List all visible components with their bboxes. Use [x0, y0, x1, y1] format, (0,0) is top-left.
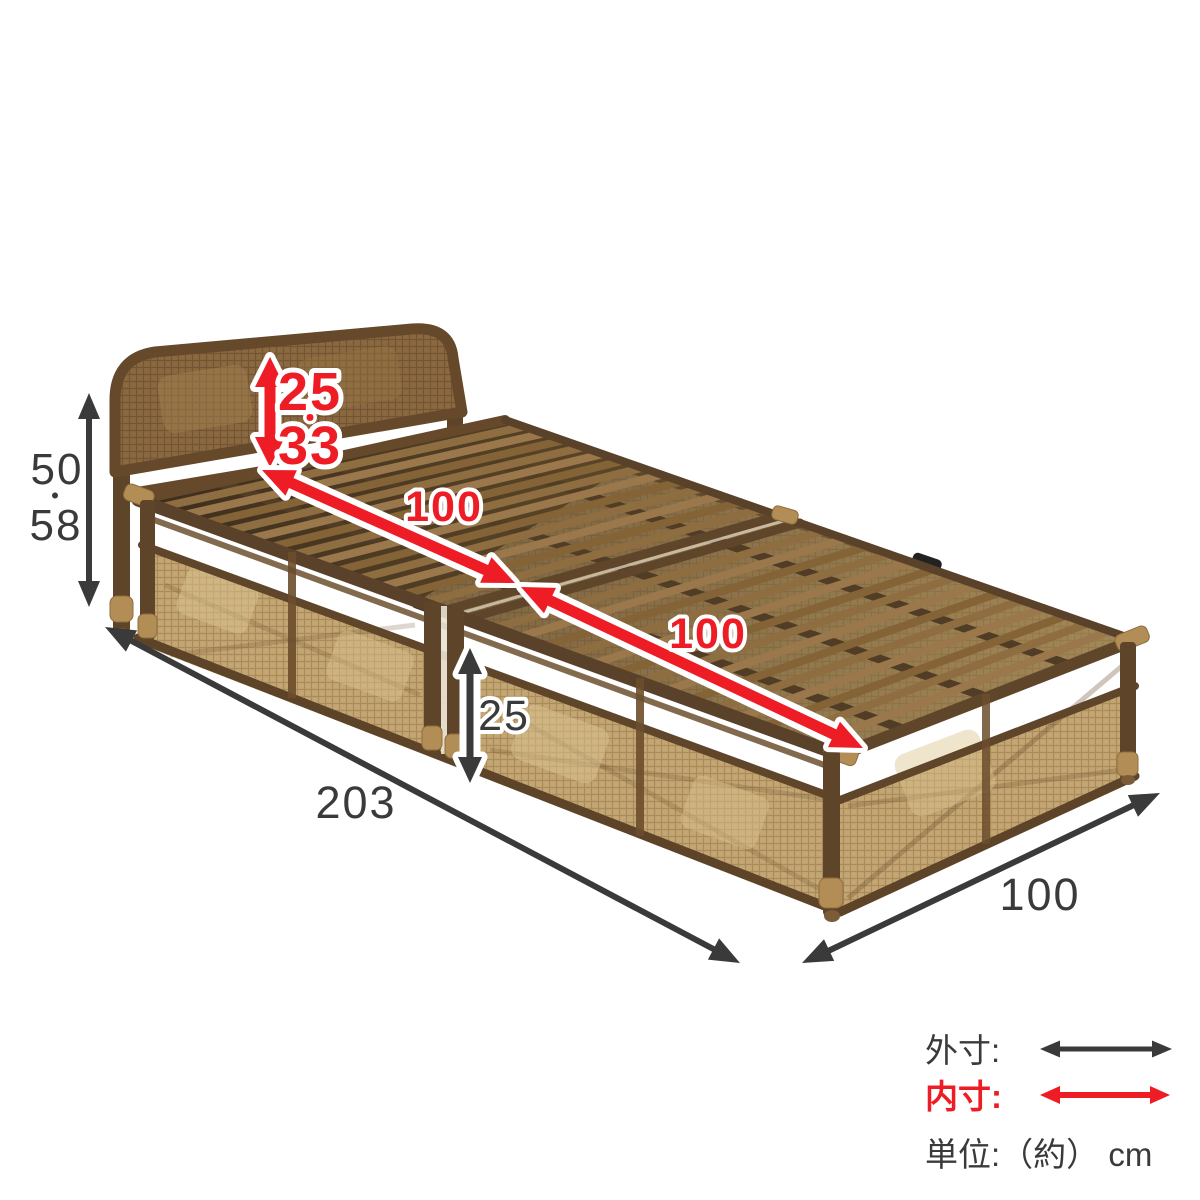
legend-inner-label: 内寸:	[925, 1078, 1002, 1115]
legend: 外寸: 内寸: 単位:（約） cm	[925, 1032, 1172, 1173]
leg-foot-cap	[1121, 775, 1135, 785]
outer-height-arrow	[78, 393, 100, 607]
outer-length-value: 203	[315, 777, 396, 828]
leg-wrap-binding	[138, 614, 157, 638]
leg-wrap-binding	[110, 596, 133, 622]
foot-mid-post	[982, 694, 990, 844]
leg-wrap-binding	[1117, 752, 1138, 776]
inner-length-upper-value: 100	[405, 483, 483, 531]
base-height-value: 25	[478, 692, 530, 740]
legend-unit-label: 単位:（約） cm	[925, 1136, 1152, 1173]
leg-foot-cap	[824, 910, 840, 922]
leg-wrap-binding	[819, 878, 843, 908]
headboard-height-value-bottom: 33	[278, 416, 342, 476]
legend-outer-label: 外寸:	[925, 1032, 1000, 1069]
panel-divider-post	[288, 552, 296, 698]
panel-divider-post	[636, 678, 644, 836]
legend-inner-arrow	[1040, 1086, 1170, 1104]
leg-wrap-binding	[422, 726, 442, 750]
outer-height-value-bottom: 58	[30, 501, 83, 550]
inner-length-lower-value: 100	[669, 610, 747, 658]
dimension-diagram: 50 ・ 58 25 ・ 33 100 100 25 203 100 外寸: 内…	[0, 0, 1200, 1200]
diagram-canvas: 50 ・ 58 25 ・ 33 100 100 25 203 100 外寸: 内…	[0, 0, 1200, 1200]
legend-outer-arrow	[1040, 1041, 1172, 1058]
outer-width-value: 100	[999, 869, 1080, 920]
